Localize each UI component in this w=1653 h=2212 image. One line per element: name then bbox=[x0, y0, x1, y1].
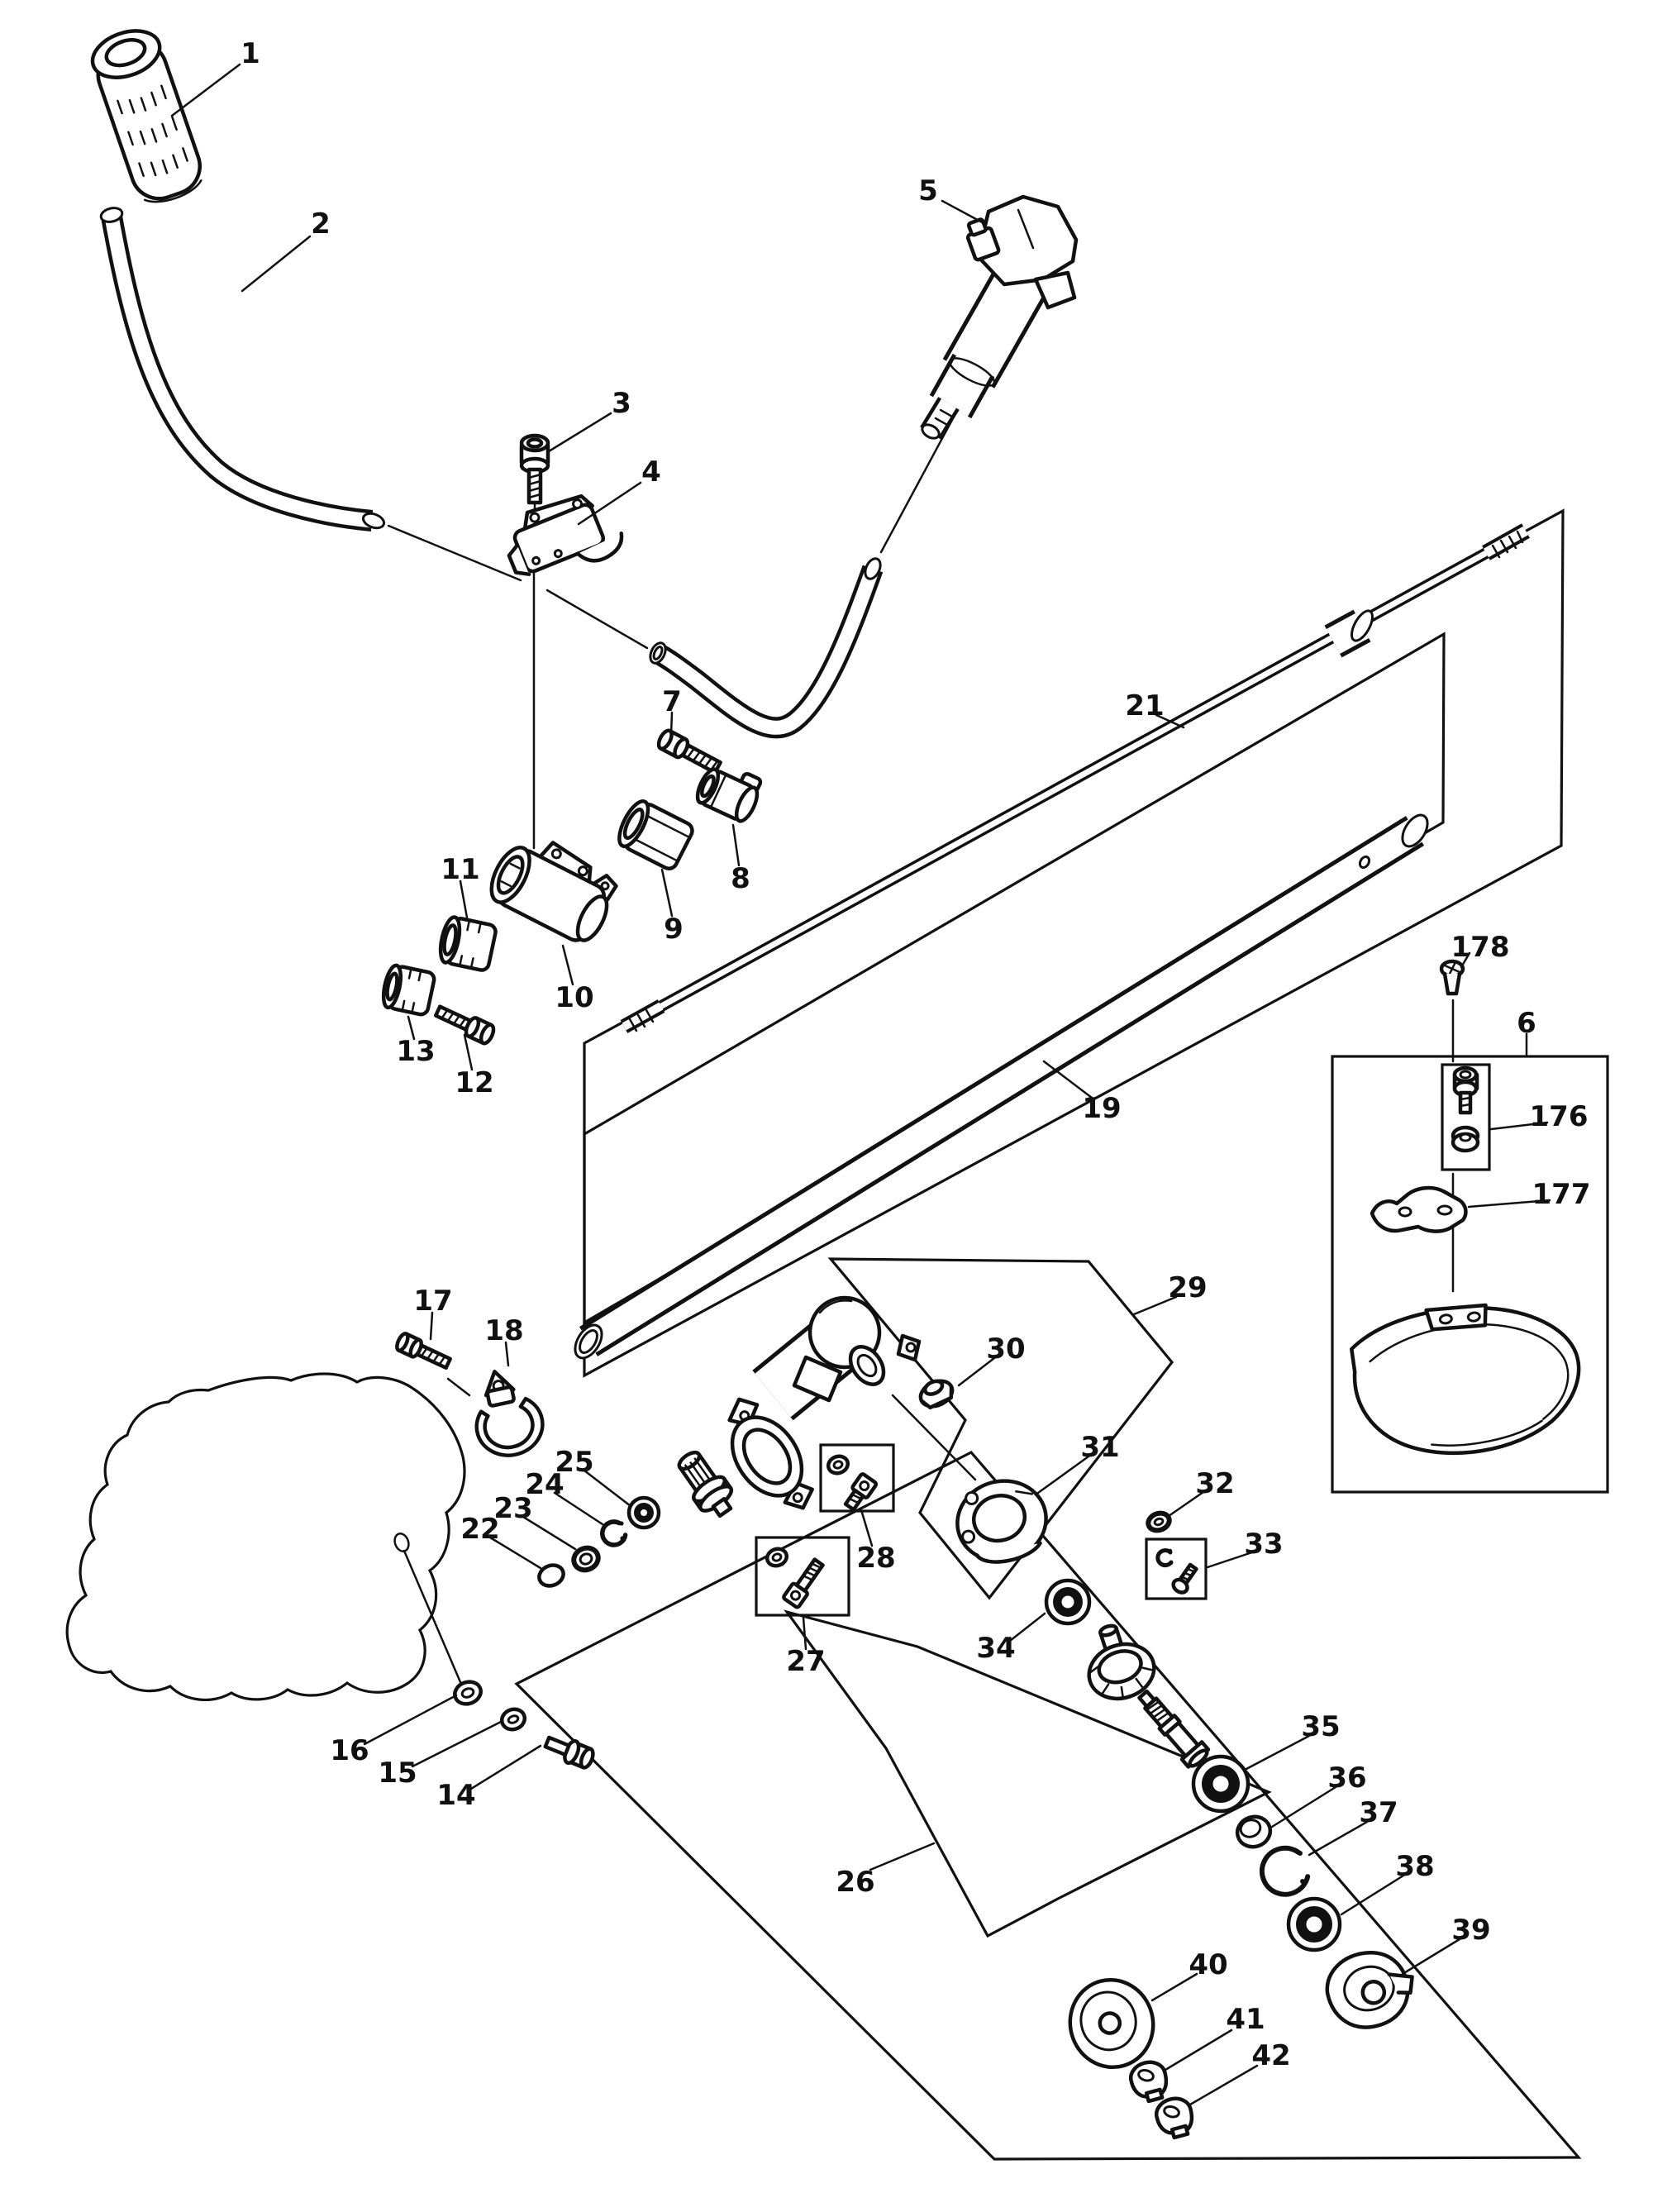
part-4-handle-clamp bbox=[497, 483, 627, 591]
part-37-snap-ring bbox=[1257, 1843, 1311, 1900]
part-label-5: 5 bbox=[918, 174, 938, 207]
throttle-side-handlebar-tube bbox=[647, 556, 883, 727]
part-label-42: 42 bbox=[1251, 2039, 1290, 2072]
part-label-31: 31 bbox=[1080, 1431, 1119, 1464]
part-label-21: 21 bbox=[1125, 689, 1164, 722]
part-24-snap-ring bbox=[599, 1519, 627, 1548]
part-38-bearing bbox=[1289, 1899, 1340, 1950]
part-label-30: 30 bbox=[986, 1332, 1025, 1366]
part-11-ring bbox=[437, 916, 497, 972]
part-label-36: 36 bbox=[1327, 1761, 1366, 1795]
part-42-cap-nut bbox=[1153, 2095, 1196, 2140]
kit-27-bolt-washer bbox=[765, 1546, 826, 1608]
part-label-177: 177 bbox=[1532, 1178, 1591, 1211]
part-22-o-ring bbox=[536, 1561, 567, 1589]
part-19-outer-pipe bbox=[569, 811, 1432, 1363]
part-label-29: 29 bbox=[1168, 1271, 1207, 1304]
part-32-washer bbox=[1146, 1510, 1171, 1533]
part-label-25: 25 bbox=[555, 1446, 593, 1479]
pinion-shaft bbox=[1133, 1686, 1211, 1771]
part-label-41: 41 bbox=[1226, 2003, 1265, 2036]
kit-33-clip-screw bbox=[1158, 1549, 1200, 1595]
part-label-8: 8 bbox=[731, 862, 750, 895]
part-label-27: 27 bbox=[786, 1645, 825, 1678]
part-17-screw bbox=[395, 1332, 452, 1371]
part-label-19: 19 bbox=[1082, 1092, 1121, 1125]
part-25-bearing bbox=[629, 1498, 659, 1528]
part-label-13: 13 bbox=[396, 1035, 435, 1068]
part-label-3: 3 bbox=[612, 387, 631, 420]
part-34-bearing bbox=[1046, 1580, 1089, 1623]
part-labels: 1 2 3 4 5 6 7 8 9 10 11 12 13 14 15 16 1… bbox=[241, 37, 1590, 2072]
shaft-coupler bbox=[671, 1446, 741, 1523]
part-label-40: 40 bbox=[1189, 1948, 1227, 1981]
part-178-screw bbox=[1441, 961, 1463, 994]
part-label-10: 10 bbox=[555, 981, 593, 1014]
part-31-cover-plate bbox=[948, 1471, 1055, 1571]
part-label-7: 7 bbox=[662, 685, 682, 718]
part-label-26: 26 bbox=[836, 1866, 874, 1899]
part-label-32: 32 bbox=[1195, 1467, 1234, 1500]
part-6-guard bbox=[1346, 1290, 1589, 1467]
part-177-guard-bracket bbox=[1372, 1188, 1465, 1232]
part-label-33: 33 bbox=[1244, 1528, 1283, 1561]
part-label-37: 37 bbox=[1359, 1796, 1398, 1829]
engine-silhouette bbox=[67, 1374, 464, 1700]
part-label-2: 2 bbox=[311, 207, 331, 241]
diagram-page: 1 2 3 4 5 6 7 8 9 10 11 12 13 14 15 16 1… bbox=[0, 0, 1653, 2212]
part-label-28: 28 bbox=[856, 1542, 895, 1575]
part-18-hanger-clamp bbox=[465, 1364, 548, 1461]
part-41-nut bbox=[1127, 2058, 1170, 2104]
kit-box-26-outline bbox=[517, 1452, 1579, 2159]
part-label-38: 38 bbox=[1395, 1850, 1434, 1883]
part-9-collar-nut bbox=[613, 797, 695, 871]
part-label-12: 12 bbox=[455, 1066, 493, 1099]
part-5-throttle-housing bbox=[920, 197, 1076, 441]
part-3-screw bbox=[522, 436, 548, 503]
kit-176-bolt-washer bbox=[1453, 1068, 1478, 1151]
part-13-ring bbox=[380, 964, 436, 1016]
part-label-17: 17 bbox=[413, 1285, 452, 1318]
part-35-bearing bbox=[1193, 1757, 1248, 1811]
part-1-handle-grip bbox=[86, 22, 208, 209]
part-label-178: 178 bbox=[1451, 931, 1510, 964]
part-label-176: 176 bbox=[1530, 1100, 1589, 1133]
part-10-handle-holder bbox=[484, 826, 624, 949]
part-label-39: 39 bbox=[1451, 1914, 1490, 1947]
part-label-14: 14 bbox=[436, 1779, 475, 1812]
part-2-handlebar-tube bbox=[99, 206, 386, 531]
part-label-4: 4 bbox=[641, 455, 661, 489]
part-label-34: 34 bbox=[976, 1632, 1015, 1665]
part-label-9: 9 bbox=[664, 913, 684, 946]
leader-lines bbox=[172, 64, 1550, 2105]
part-label-11: 11 bbox=[441, 853, 479, 886]
part-label-6: 6 bbox=[1517, 1007, 1536, 1040]
part-15-washer bbox=[499, 1706, 528, 1733]
part-label-15: 15 bbox=[378, 1757, 417, 1790]
part-label-16: 16 bbox=[330, 1734, 369, 1767]
part-label-35: 35 bbox=[1301, 1710, 1340, 1743]
part-16-washer bbox=[452, 1678, 484, 1707]
parts-diagram-canvas: 1 2 3 4 5 6 7 8 9 10 11 12 13 14 15 16 1… bbox=[0, 0, 1653, 2212]
part-30-bolt bbox=[917, 1375, 957, 1411]
part-36-collar bbox=[1233, 1813, 1274, 1852]
part-label-1: 1 bbox=[241, 37, 260, 70]
part-label-18: 18 bbox=[484, 1314, 523, 1347]
gear-case-assembly bbox=[707, 1298, 919, 1525]
